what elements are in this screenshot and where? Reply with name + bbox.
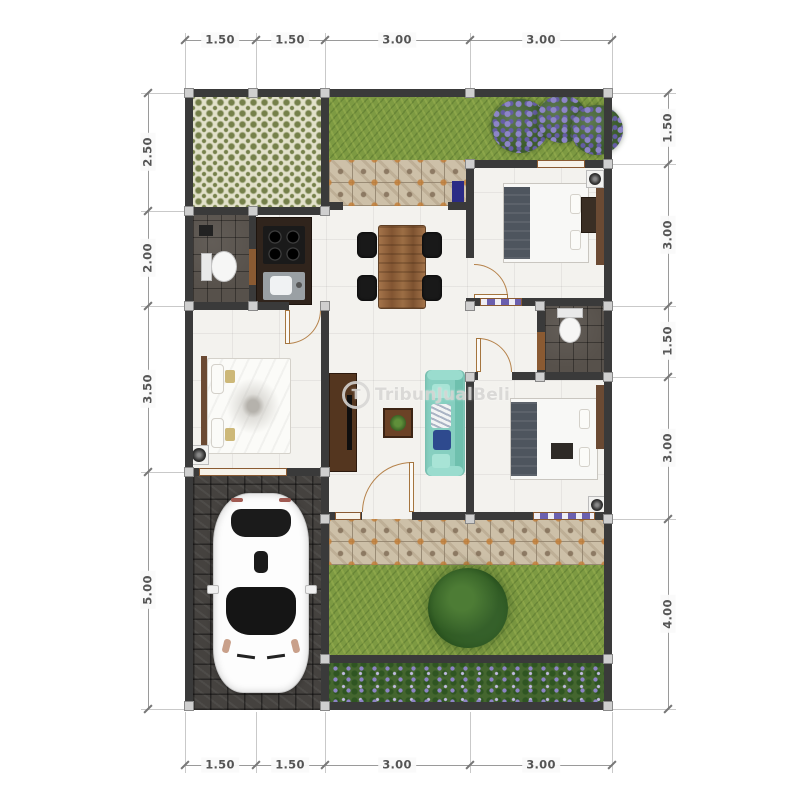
column-marker [535,301,545,311]
faucet [296,282,302,288]
column-marker [465,514,475,524]
window [335,512,361,520]
car-taillight [279,498,291,502]
bedroom-2-door [476,338,481,372]
wall [185,89,193,710]
dining-table [378,225,426,309]
pillow [570,230,581,250]
column-marker [320,654,330,664]
toilet-2-bowl [559,317,581,343]
column-marker [465,301,475,311]
dim-label: 1.50 [271,758,309,773]
wall [321,89,329,215]
watermark: T TribunJualBeli [342,381,510,409]
pillow [570,194,581,214]
accent-cushion [225,370,235,383]
column-marker [603,372,613,382]
extension-line [470,33,471,91]
column-marker [603,654,613,664]
dim-label: 3.50 [141,370,156,408]
extension-line [325,33,326,91]
bedroom-1-door-arc [474,264,508,298]
dining-chair [422,275,442,301]
coffee-table [383,408,413,438]
dim-label: 1.50 [661,322,676,360]
column-marker [465,88,475,98]
dim-label: 2.00 [141,239,156,277]
navy-pillow [433,430,451,450]
dim-label: 4.00 [661,595,676,633]
bed-2 [510,398,598,480]
dim-label: 1.50 [201,758,239,773]
bed-duvet [504,187,530,259]
car-mirror [305,585,317,594]
wall [448,202,474,210]
wall [321,702,612,710]
pillow [579,447,590,467]
dim-label: 3.00 [522,758,560,773]
column-marker [603,701,613,711]
master-bedroom-door-arc [287,310,321,344]
wardrobe-1 [596,181,604,265]
column-marker [603,301,613,311]
flower-bed [329,663,604,702]
window [199,468,287,476]
back-terrace-tiles [329,519,604,565]
dining-chair [357,275,377,301]
sofa-armrest [427,370,463,380]
dining-chair [357,232,377,258]
front-door-arc [362,462,412,512]
column-marker [320,467,330,477]
dim-label: 1.50 [661,109,676,147]
watermark-text: TribunJualBeli [375,385,510,405]
extension-line [185,33,186,91]
entry-tile-walkway [329,160,466,206]
toilet-1-bowl [211,251,237,282]
bathroom-2-door [537,332,545,370]
bed-1 [503,183,589,263]
car [213,493,309,693]
window [537,160,585,168]
column-marker [248,206,258,216]
column-marker [465,159,475,169]
wall [512,372,612,380]
column-marker [320,206,330,216]
column-marker [603,88,613,98]
car-taillight [231,498,243,502]
wall [185,302,289,310]
car-windshield [226,587,296,635]
pillow [211,418,224,448]
wall [466,168,474,258]
dim-label: 2.50 [141,133,156,171]
bathroom-1-door [249,249,256,285]
car-sunroof [254,551,268,573]
wall [329,655,604,663]
dim-label: 3.00 [661,216,676,254]
wall [321,302,329,480]
column-marker [184,206,194,216]
column-marker [184,301,194,311]
flower-bush [571,105,623,155]
window [533,512,595,520]
sink-bowl [270,276,292,295]
column-marker [603,159,613,169]
stove [263,226,305,264]
dim-label: 1.50 [271,33,309,48]
kitchen-counter [256,217,312,305]
accent-cushion [225,428,235,441]
fan [586,170,604,188]
bathroom-1-vanity [199,225,213,236]
cushion [432,454,450,468]
desk-items [551,443,573,459]
column-marker [320,301,330,311]
column-marker [320,514,330,524]
dining-chair [422,232,442,258]
column-marker [248,88,258,98]
dim-label: 5.00 [141,571,156,609]
wall [321,472,329,710]
column-marker [320,88,330,98]
car-mirror [207,585,219,594]
pillow [579,409,590,429]
column-marker [248,301,258,311]
dim-label: 3.00 [522,33,560,48]
column-marker [184,467,194,477]
column-marker [184,88,194,98]
patterned-tile-room [193,97,321,207]
window [480,298,522,306]
dim-label: 3.00 [378,33,416,48]
extension-line [612,33,613,91]
garden-tree [428,568,508,648]
column-marker [320,701,330,711]
extension-line [256,33,257,91]
master-bedroom-door [285,310,290,344]
car-rear-window [231,509,291,537]
wall [604,89,612,710]
column-marker [535,372,545,382]
dim-label: 3.00 [661,429,676,467]
pillow [211,364,224,394]
wardrobe-2 [596,385,604,449]
watermark-logo-icon: T [342,381,370,409]
front-door [409,462,414,512]
plant [390,415,406,431]
column-marker [184,701,194,711]
kitchen-sink [263,272,305,300]
bed-duvet [511,402,537,476]
column-marker [603,514,613,524]
floorplan-image: 1.50 1.50 3.00 3.00 1.50 1.50 3.00 3.00 [0,0,800,800]
dim-label: 3.00 [378,758,416,773]
bedroom-2-door-arc [478,338,512,372]
master-bed [201,356,291,456]
dim-label: 1.50 [201,33,239,48]
